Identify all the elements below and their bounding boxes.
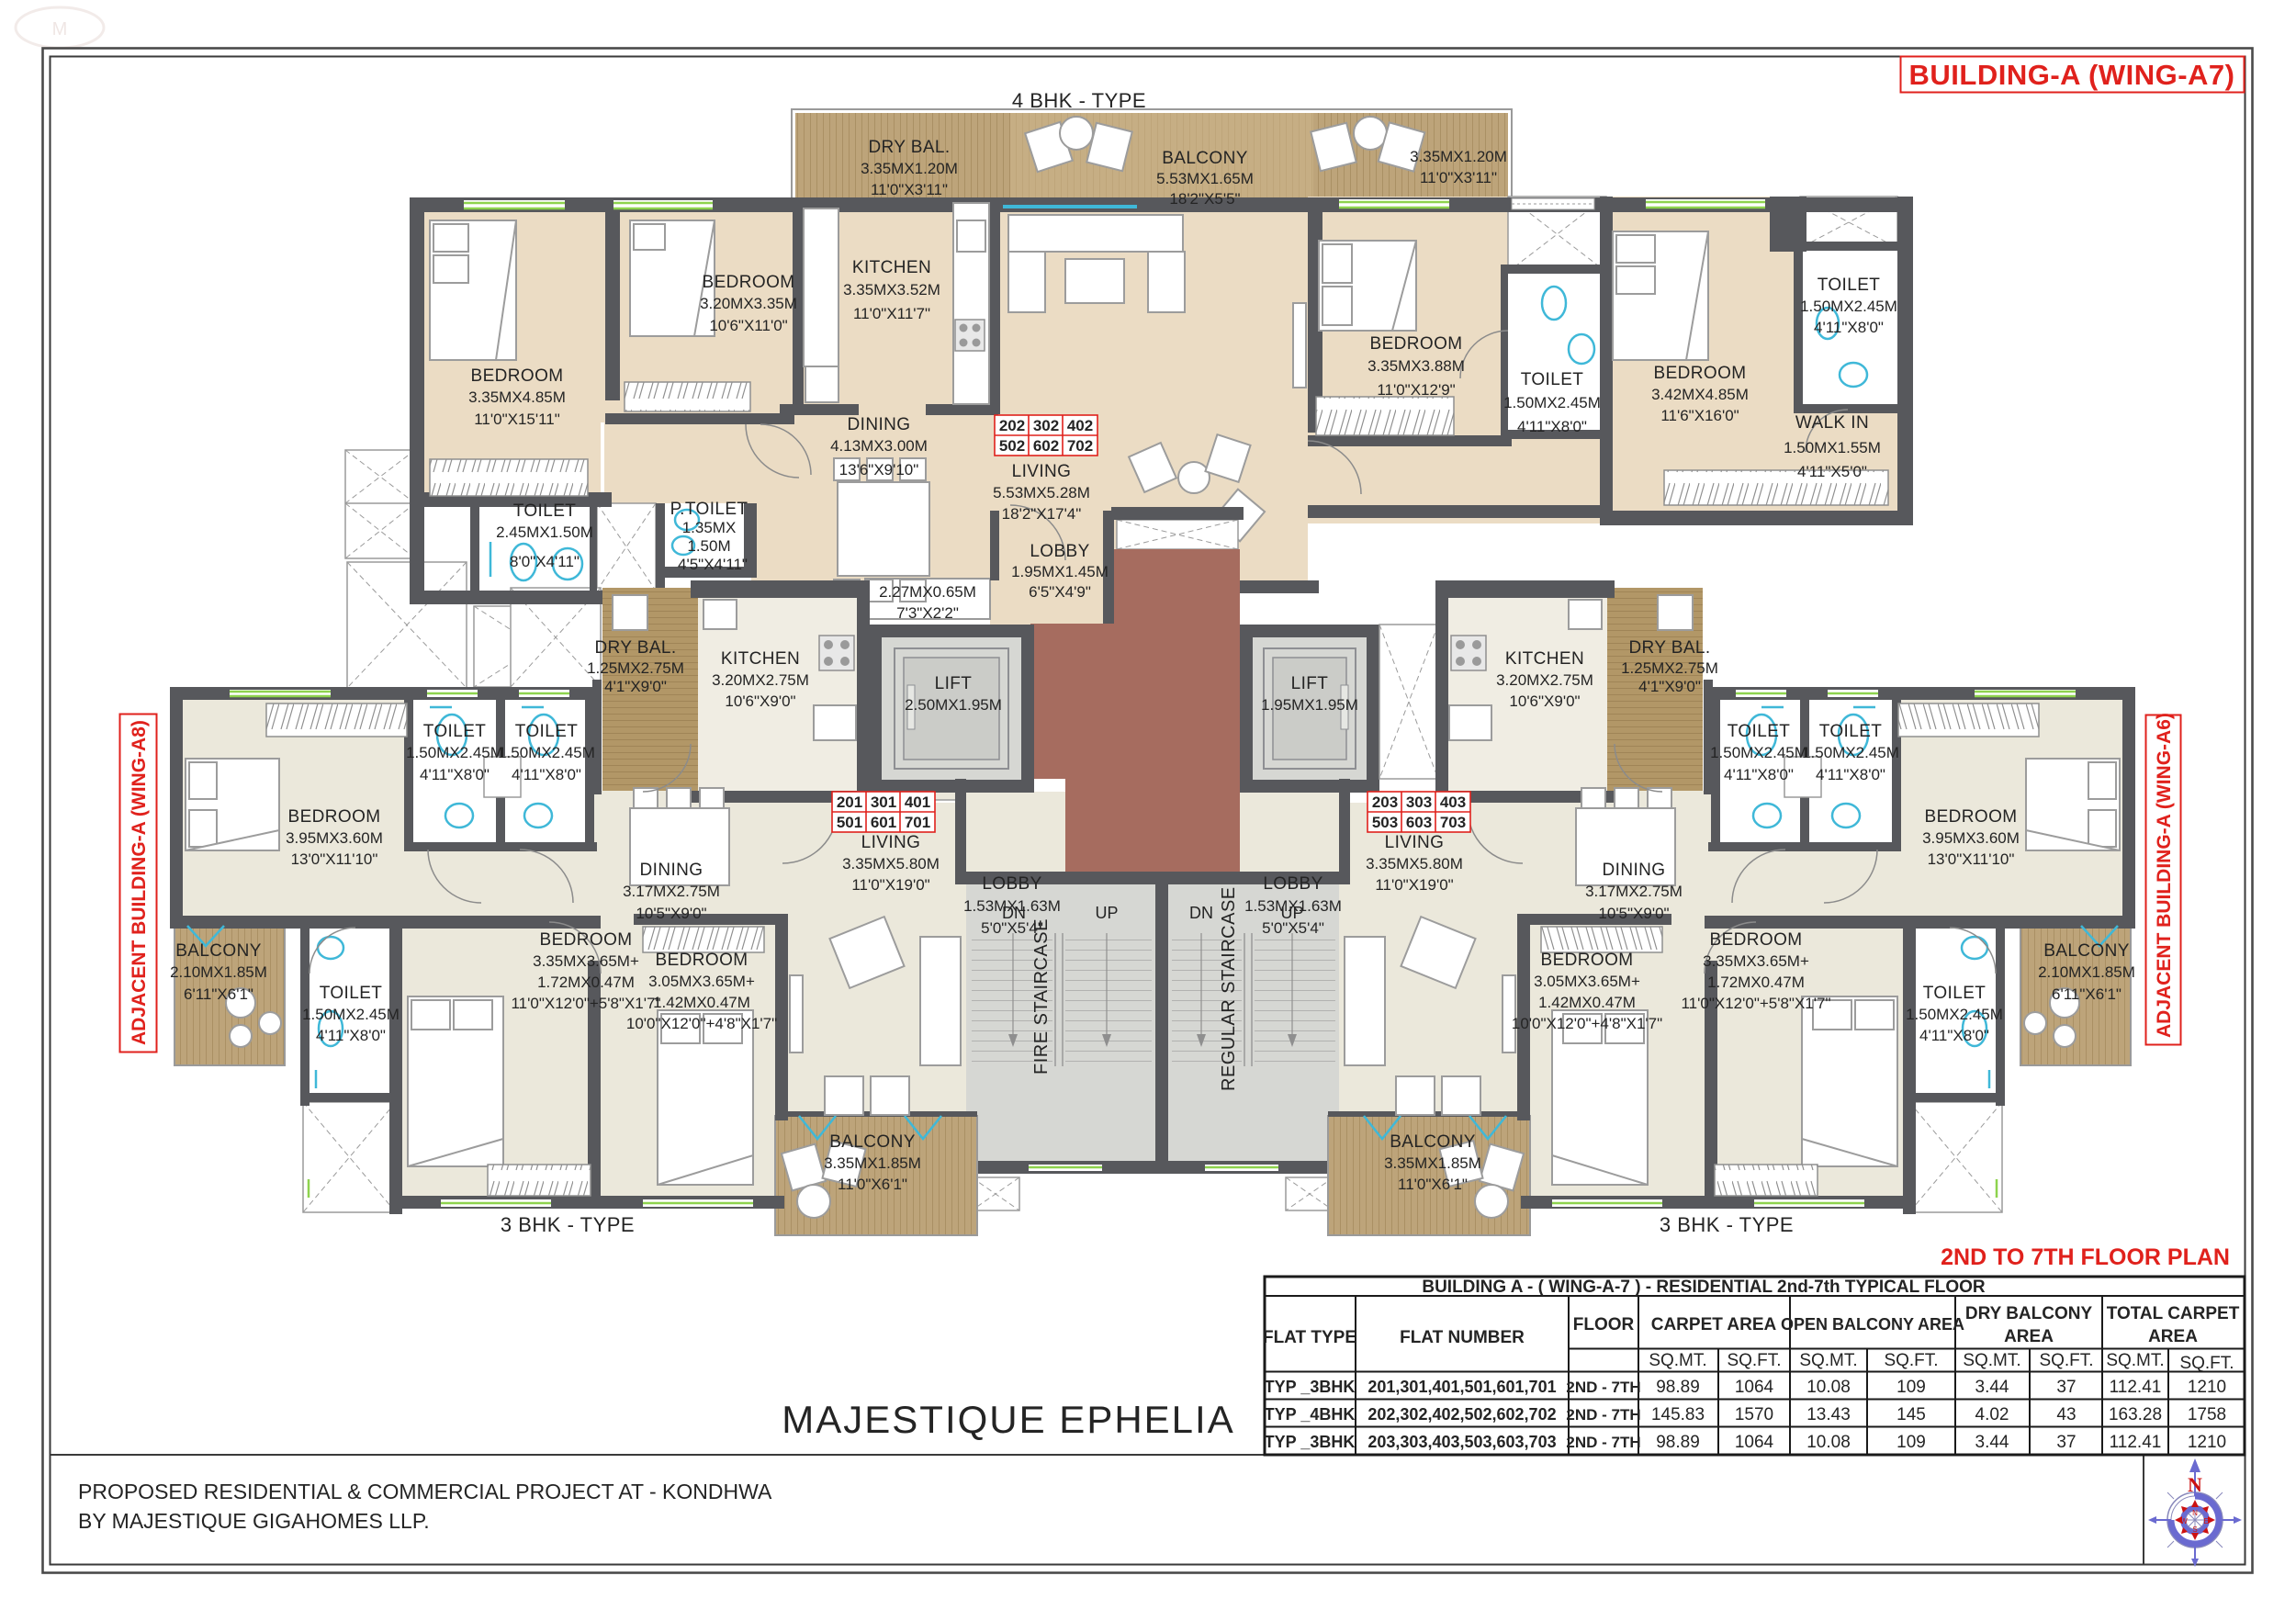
svg-text:1.50MX2.45M: 1.50MX2.45M: [1800, 298, 1897, 315]
svg-text:MAJESTIQUE EPHELIA: MAJESTIQUE EPHELIA: [782, 1398, 1234, 1441]
svg-text:3.35MX1.85M: 3.35MX1.85M: [824, 1154, 921, 1172]
svg-text:REGULAR STAIRCASE: REGULAR STAIRCASE: [1219, 886, 1239, 1091]
svg-text:1.35MX: 1.35MX: [682, 519, 737, 536]
svg-text:BEDROOM: BEDROOM: [703, 273, 795, 292]
svg-text:18'2"X17'4": 18'2"X17'4": [1002, 505, 1082, 523]
svg-text:3.44: 3.44: [1975, 1433, 2009, 1452]
svg-text:TOILET: TOILET: [1819, 722, 1883, 741]
svg-text:3.17MX2.75M: 3.17MX2.75M: [623, 883, 720, 900]
svg-text:11'0"X19'0": 11'0"X19'0": [1375, 876, 1453, 894]
svg-text:BEDROOM: BEDROOM: [1370, 334, 1463, 354]
svg-text:2.10MX1.85M: 2.10MX1.85M: [170, 963, 267, 981]
svg-text:DRY BALCONY: DRY BALCONY: [1965, 1304, 2093, 1323]
svg-text:1.50MX2.45M: 1.50MX2.45M: [406, 744, 503, 761]
svg-text:LIVING: LIVING: [861, 833, 921, 852]
svg-text:1.50MX2.45M: 1.50MX2.45M: [498, 744, 595, 761]
svg-text:3.35MX3.88M: 3.35MX3.88M: [1367, 357, 1465, 375]
svg-text:3.35MX3.65M+: 3.35MX3.65M+: [1703, 952, 1809, 970]
svg-text:3.20MX3.35M: 3.20MX3.35M: [700, 295, 797, 312]
svg-text:3.35MX3.65M+: 3.35MX3.65M+: [533, 952, 639, 970]
svg-text:4.13MX3.00M: 4.13MX3.00M: [830, 437, 928, 455]
svg-text:FLAT NUMBER: FLAT NUMBER: [1400, 1328, 1525, 1347]
svg-text:LOBBY: LOBBY: [982, 874, 1041, 894]
svg-text:13.43: 13.43: [1806, 1405, 1851, 1424]
svg-text:7'3"X2'2": 7'3"X2'2": [896, 604, 959, 622]
svg-text:203: 203: [1372, 794, 1398, 811]
svg-text:3.35MX5.80M: 3.35MX5.80M: [842, 855, 940, 872]
svg-text:3 BHK - TYPE: 3 BHK - TYPE: [1660, 1213, 1794, 1236]
svg-text:503: 503: [1372, 814, 1398, 831]
svg-text:DRY BAL.: DRY BAL.: [868, 138, 950, 157]
svg-text:BY MAJESTIQUE GIGAHOMES LLP.: BY MAJESTIQUE GIGAHOMES LLP.: [78, 1509, 430, 1533]
svg-text:3.95MX3.60M: 3.95MX3.60M: [286, 829, 383, 847]
svg-text:FLOOR: FLOOR: [1573, 1315, 1635, 1334]
svg-text:TOILET: TOILET: [1818, 276, 1881, 295]
svg-text:SQ.MT.: SQ.MT.: [2106, 1351, 2164, 1370]
svg-text:11'0"X15'11": 11'0"X15'11": [474, 411, 560, 428]
svg-text:401: 401: [905, 794, 930, 811]
svg-text:N: N: [2188, 1473, 2202, 1496]
svg-text:3.35MX1.85M: 3.35MX1.85M: [1384, 1154, 1481, 1172]
svg-text:18'2"X5'5": 18'2"X5'5": [1169, 190, 1240, 208]
svg-text:43: 43: [2056, 1405, 2076, 1424]
svg-text:TOTAL CARPET: TOTAL CARPET: [2107, 1304, 2240, 1323]
svg-text:11'0"X6'1": 11'0"X6'1": [1398, 1176, 1468, 1193]
svg-text:SQ.MT.: SQ.MT.: [1799, 1351, 1857, 1370]
svg-text:OPEN BALCONY AREA: OPEN BALCONY AREA: [1781, 1315, 1964, 1334]
svg-text:8'0"X4'11": 8'0"X4'11": [510, 553, 580, 570]
svg-text:LOBBY: LOBBY: [1263, 874, 1322, 894]
svg-text:4 BHK - TYPE: 4 BHK - TYPE: [1012, 89, 1146, 112]
svg-text:4.02: 4.02: [1975, 1405, 2009, 1424]
svg-text:10.08: 10.08: [1806, 1433, 1851, 1452]
svg-text:3.44: 3.44: [1975, 1378, 2009, 1397]
svg-text:5.53MX5.28M: 5.53MX5.28M: [993, 484, 1090, 501]
svg-text:403: 403: [1440, 794, 1466, 811]
svg-text:SQ.FT.: SQ.FT.: [2039, 1351, 2093, 1370]
svg-text:602: 602: [1033, 437, 1059, 455]
svg-text:10'6"X9'0": 10'6"X9'0": [1509, 692, 1580, 710]
svg-text:CARPET AREA: CARPET AREA: [1651, 1315, 1777, 1334]
svg-text:402: 402: [1067, 417, 1093, 434]
svg-text:2.27MX0.65M: 2.27MX0.65M: [879, 583, 976, 601]
svg-text:13'6"X9'10": 13'6"X9'10": [839, 461, 919, 478]
svg-text:LIFT: LIFT: [935, 674, 973, 693]
svg-text:1.50MX2.45M: 1.50MX2.45M: [1503, 394, 1601, 411]
svg-text:SQ.FT.: SQ.FT.: [1884, 1351, 1938, 1370]
svg-text:BUILDING-A (WING-A7): BUILDING-A (WING-A7): [1909, 59, 2235, 91]
svg-text:FIRE STAIRCASE: FIRE STAIRCASE: [1031, 918, 1052, 1075]
svg-text:1.50MX1.55M: 1.50MX1.55M: [1784, 439, 1881, 456]
svg-text:4'11"X5'0": 4'11"X5'0": [1797, 463, 1867, 480]
svg-text:TYP _3BHK: TYP _3BHK: [1265, 1433, 1356, 1451]
svg-text:N: N: [2192, 1509, 2198, 1517]
svg-text:E: E: [2203, 1517, 2208, 1525]
svg-text:5'0"X5'4": 5'0"X5'4": [1262, 919, 1324, 937]
svg-text:2.45MX1.50M: 2.45MX1.50M: [496, 523, 593, 541]
svg-text:201: 201: [837, 794, 862, 811]
svg-text:P.TOILET: P.TOILET: [670, 500, 748, 519]
svg-text:PROPOSED RESIDENTIAL & COMMER: PROPOSED RESIDENTIAL & COMMERCIAL PROJEC…: [78, 1480, 772, 1503]
svg-text:1.25MX2.75M: 1.25MX2.75M: [1621, 659, 1718, 677]
svg-text:145: 145: [1896, 1405, 1926, 1424]
svg-text:3.35MX3.52M: 3.35MX3.52M: [843, 281, 940, 298]
svg-text:2ND - 7TH: 2ND - 7TH: [1566, 1379, 1640, 1396]
svg-text:KITCHEN: KITCHEN: [1505, 649, 1584, 669]
svg-text:303: 303: [1406, 794, 1432, 811]
svg-text:1.53MX1.63M: 1.53MX1.63M: [963, 897, 1061, 915]
svg-text:2.50MX1.95M: 2.50MX1.95M: [905, 696, 1002, 714]
svg-text:112.41: 112.41: [2110, 1433, 2162, 1452]
svg-text:1.42MX0.47M: 1.42MX0.47M: [1538, 994, 1636, 1011]
svg-text:BEDROOM: BEDROOM: [1710, 930, 1803, 950]
svg-text:98.89: 98.89: [1656, 1433, 1700, 1452]
svg-text:3.20MX2.75M: 3.20MX2.75M: [1496, 671, 1593, 689]
svg-text:4'11"X8'0": 4'11"X8'0": [420, 766, 490, 783]
svg-text:SQ.FT.: SQ.FT.: [2179, 1354, 2234, 1373]
svg-text:DRY BAL.: DRY BAL.: [594, 638, 676, 658]
svg-text:202,302,402,502,602,702: 202,302,402,502,602,702: [1367, 1405, 1556, 1424]
svg-text:LIVING: LIVING: [1385, 833, 1445, 852]
svg-text:1.50MX2.45M: 1.50MX2.45M: [302, 1006, 400, 1023]
svg-text:WALK IN: WALK IN: [1795, 413, 1869, 433]
svg-text:TOILET: TOILET: [1923, 984, 1986, 1003]
svg-text:4'11"X8'0": 4'11"X8'0": [512, 766, 581, 783]
svg-text:1.95MX1.95M: 1.95MX1.95M: [1261, 696, 1358, 714]
svg-text:ADJACENT BUILDING-A (WING-A6): ADJACENT BUILDING-A (WING-A6): [2154, 713, 2175, 1038]
svg-text:1.95MX1.45M: 1.95MX1.45M: [1011, 563, 1109, 580]
svg-text:10'5"X9'0": 10'5"X9'0": [1598, 905, 1669, 922]
svg-text:3.35MX1.20M: 3.35MX1.20M: [861, 160, 958, 177]
svg-text:203,303,403,503,603,703: 203,303,403,503,603,703: [1367, 1433, 1556, 1451]
svg-text:1.42MX0.47M: 1.42MX0.47M: [653, 994, 750, 1011]
svg-text:2.10MX1.85M: 2.10MX1.85M: [2038, 963, 2135, 981]
svg-text:11'0"X3'11": 11'0"X3'11": [871, 181, 948, 198]
svg-text:1.25MX2.75M: 1.25MX2.75M: [587, 659, 684, 677]
svg-text:11'0"X19'0": 11'0"X19'0": [851, 876, 929, 894]
svg-text:10'6"X11'0": 10'6"X11'0": [709, 317, 787, 334]
svg-text:1.72MX0.47M: 1.72MX0.47M: [1707, 974, 1805, 991]
svg-text:TOILET: TOILET: [320, 984, 383, 1003]
svg-text:4'11"X8'0": 4'11"X8'0": [316, 1027, 386, 1044]
svg-text:10'6"X9'0": 10'6"X9'0": [725, 692, 795, 710]
svg-text:701: 701: [905, 814, 930, 831]
svg-text:11'0"X12'9": 11'0"X12'9": [1377, 381, 1455, 399]
svg-text:TOILET: TOILET: [513, 501, 577, 521]
svg-text:2ND - 7TH: 2ND - 7TH: [1566, 1434, 1640, 1451]
svg-text:DINING: DINING: [1603, 861, 1666, 880]
svg-text:BEDROOM: BEDROOM: [540, 930, 633, 950]
svg-text:FLAT TYPE: FLAT TYPE: [1263, 1328, 1356, 1347]
svg-text:601: 601: [871, 814, 896, 831]
svg-text:BEDROOM: BEDROOM: [1925, 807, 2018, 827]
svg-text:10'5"X9'0": 10'5"X9'0": [636, 905, 706, 922]
svg-text:1.50M: 1.50M: [687, 537, 730, 555]
svg-text:3.35MX5.80M: 3.35MX5.80M: [1366, 855, 1463, 872]
svg-text:DRY BAL.: DRY BAL.: [1628, 638, 1710, 658]
svg-text:37: 37: [2056, 1378, 2076, 1397]
svg-text:13'0"X11'10": 13'0"X11'10": [291, 850, 378, 868]
svg-text:10.08: 10.08: [1806, 1378, 1851, 1397]
svg-text:TOILET: TOILET: [515, 722, 579, 741]
svg-text:5.53MX1.65M: 5.53MX1.65M: [1156, 170, 1254, 187]
svg-text:163.28: 163.28: [2109, 1405, 2162, 1424]
svg-text:10'0"X12'0"+4'8"X1'7": 10'0"X12'0"+4'8"X1'7": [1512, 1015, 1662, 1032]
svg-text:SQ.FT.: SQ.FT.: [1727, 1351, 1781, 1370]
svg-text:1570: 1570: [1735, 1405, 1773, 1424]
svg-text:302: 302: [1033, 417, 1059, 434]
svg-text:5'0"X5'4": 5'0"X5'4": [981, 919, 1043, 937]
svg-text:1.50MX2.45M: 1.50MX2.45M: [1906, 1006, 2003, 1023]
svg-text:W: W: [2180, 1517, 2188, 1525]
svg-text:TOILET: TOILET: [1521, 370, 1584, 389]
svg-text:1064: 1064: [1735, 1433, 1774, 1452]
svg-text:3.20MX2.75M: 3.20MX2.75M: [712, 671, 809, 689]
svg-text:1064: 1064: [1735, 1378, 1774, 1397]
svg-text:S: S: [2192, 1525, 2197, 1534]
svg-text:AREA: AREA: [2004, 1327, 2054, 1346]
svg-text:502: 502: [999, 437, 1025, 455]
svg-text:4'5"X4'11": 4'5"X4'11": [678, 556, 748, 573]
svg-text:10'0"X12'0"+4'8"X1'7": 10'0"X12'0"+4'8"X1'7": [626, 1015, 777, 1032]
svg-text:11'0"X6'1": 11'0"X6'1": [838, 1176, 907, 1193]
svg-text:KITCHEN: KITCHEN: [721, 649, 800, 669]
svg-text:BALCONY: BALCONY: [175, 941, 262, 961]
svg-text:3.95MX3.60M: 3.95MX3.60M: [1922, 829, 2020, 847]
svg-text:702: 702: [1067, 437, 1093, 455]
svg-text:BEDROOM: BEDROOM: [656, 951, 748, 970]
svg-text:11'0"X11'7": 11'0"X11'7": [853, 305, 930, 322]
svg-text:109: 109: [1896, 1378, 1926, 1397]
svg-text:703: 703: [1440, 814, 1466, 831]
svg-text:4'11"X8'0": 4'11"X8'0": [1919, 1027, 1989, 1044]
svg-text:145.83: 145.83: [1651, 1405, 1705, 1424]
svg-text:11'0"X3'11": 11'0"X3'11": [1420, 169, 1497, 186]
svg-text:TYP _3BHK: TYP _3BHK: [1265, 1378, 1356, 1396]
svg-text:1.53MX1.63M: 1.53MX1.63M: [1244, 897, 1342, 915]
svg-text:3.35MX1.20M: 3.35MX1.20M: [1410, 148, 1507, 165]
svg-text:11'6"X16'0": 11'6"X16'0": [1660, 407, 1739, 424]
svg-text:LIFT: LIFT: [1291, 674, 1329, 693]
svg-text:4'11"X8'0": 4'11"X8'0": [1814, 319, 1884, 336]
svg-text:4'11"X8'0": 4'11"X8'0": [1517, 418, 1587, 435]
svg-text:BEDROOM: BEDROOM: [1541, 951, 1634, 970]
svg-text:UP: UP: [1095, 904, 1118, 922]
svg-text:112.41: 112.41: [2110, 1378, 2162, 1397]
svg-text:3.35MX4.85M: 3.35MX4.85M: [468, 388, 566, 406]
svg-text:SQ.MT.: SQ.MT.: [1963, 1351, 2020, 1370]
svg-text:6'11"X6'1": 6'11"X6'1": [2052, 985, 2122, 1003]
svg-text:DINING: DINING: [640, 861, 703, 880]
svg-text:202: 202: [999, 417, 1025, 434]
svg-text:201,301,401,501,601,701: 201,301,401,501,601,701: [1367, 1378, 1556, 1396]
svg-text:LOBBY: LOBBY: [1030, 542, 1089, 561]
svg-text:1.72MX0.47M: 1.72MX0.47M: [537, 974, 635, 991]
svg-text:3.05MX3.65M+: 3.05MX3.65M+: [648, 973, 755, 990]
svg-text:1758: 1758: [2188, 1405, 2226, 1424]
svg-text:2ND - 7TH: 2ND - 7TH: [1566, 1406, 1640, 1424]
svg-text:BALCONY: BALCONY: [829, 1132, 916, 1152]
svg-text:BEDROOM: BEDROOM: [1654, 364, 1747, 383]
svg-text:1.50MX2.45M: 1.50MX2.45M: [1802, 744, 1899, 761]
svg-text:3.17MX2.75M: 3.17MX2.75M: [1585, 883, 1683, 900]
svg-text:SQ.MT.: SQ.MT.: [1649, 1351, 1706, 1370]
svg-text:3.42MX4.85M: 3.42MX4.85M: [1651, 386, 1749, 403]
svg-text:BEDROOM: BEDROOM: [471, 366, 564, 386]
svg-text:37: 37: [2056, 1433, 2076, 1452]
svg-text:AREA: AREA: [2148, 1327, 2198, 1346]
svg-text:3.05MX3.65M+: 3.05MX3.65M+: [1534, 973, 1640, 990]
svg-text:109: 109: [1896, 1433, 1926, 1452]
svg-text:TOILET: TOILET: [1728, 722, 1791, 741]
svg-text:11'0"X12'0"+5'8"X1'7": 11'0"X12'0"+5'8"X1'7": [511, 995, 660, 1012]
svg-text:1.50MX2.45M: 1.50MX2.45M: [1710, 744, 1807, 761]
svg-text:2ND TO 7TH FLOOR PLAN: 2ND TO 7TH FLOOR PLAN: [1941, 1244, 2230, 1270]
svg-text:501: 501: [837, 814, 862, 831]
svg-text:4'1"X9'0": 4'1"X9'0": [604, 678, 667, 695]
svg-text:KITCHEN: KITCHEN: [852, 258, 931, 277]
svg-text:13'0"X11'10": 13'0"X11'10": [1928, 850, 2015, 868]
svg-text:DINING: DINING: [848, 415, 911, 434]
svg-text:M: M: [52, 19, 68, 39]
svg-text:ADJACENT BUILDING-A (WING-A8): ADJACENT BUILDING-A (WING-A8): [129, 720, 150, 1045]
svg-text:3 BHK - TYPE: 3 BHK - TYPE: [501, 1213, 635, 1236]
svg-text:1210: 1210: [2188, 1378, 2226, 1397]
svg-text:6'5"X4'9": 6'5"X4'9": [1029, 583, 1091, 601]
svg-text:BALCONY: BALCONY: [1162, 149, 1248, 168]
svg-text:4'11"X8'0": 4'11"X8'0": [1724, 766, 1794, 783]
svg-text:DN: DN: [1189, 904, 1213, 922]
svg-text:BUILDING A - ( WING-A-7 ) - R: BUILDING A - ( WING-A-7 ) - RESIDENTIAL …: [1422, 1278, 1986, 1297]
svg-text:4'11"X8'0": 4'11"X8'0": [1816, 766, 1885, 783]
svg-text:BALCONY: BALCONY: [2043, 941, 2130, 961]
svg-text:LIVING: LIVING: [1012, 462, 1072, 481]
svg-text:603: 603: [1406, 814, 1432, 831]
svg-text:11'0"X12'0"+5'8"X1'7": 11'0"X12'0"+5'8"X1'7": [1681, 995, 1830, 1012]
svg-text:BEDROOM: BEDROOM: [288, 807, 381, 827]
svg-text:301: 301: [871, 794, 896, 811]
svg-text:TOILET: TOILET: [423, 722, 487, 741]
svg-text:6'11"X6'1": 6'11"X6'1": [184, 985, 253, 1003]
svg-text:TYP _4BHK: TYP _4BHK: [1265, 1405, 1356, 1424]
svg-text:BALCONY: BALCONY: [1390, 1132, 1476, 1152]
svg-text:1210: 1210: [2188, 1433, 2226, 1452]
svg-text:98.89: 98.89: [1656, 1378, 1700, 1397]
svg-text:4'1"X9'0": 4'1"X9'0": [1638, 678, 1701, 695]
